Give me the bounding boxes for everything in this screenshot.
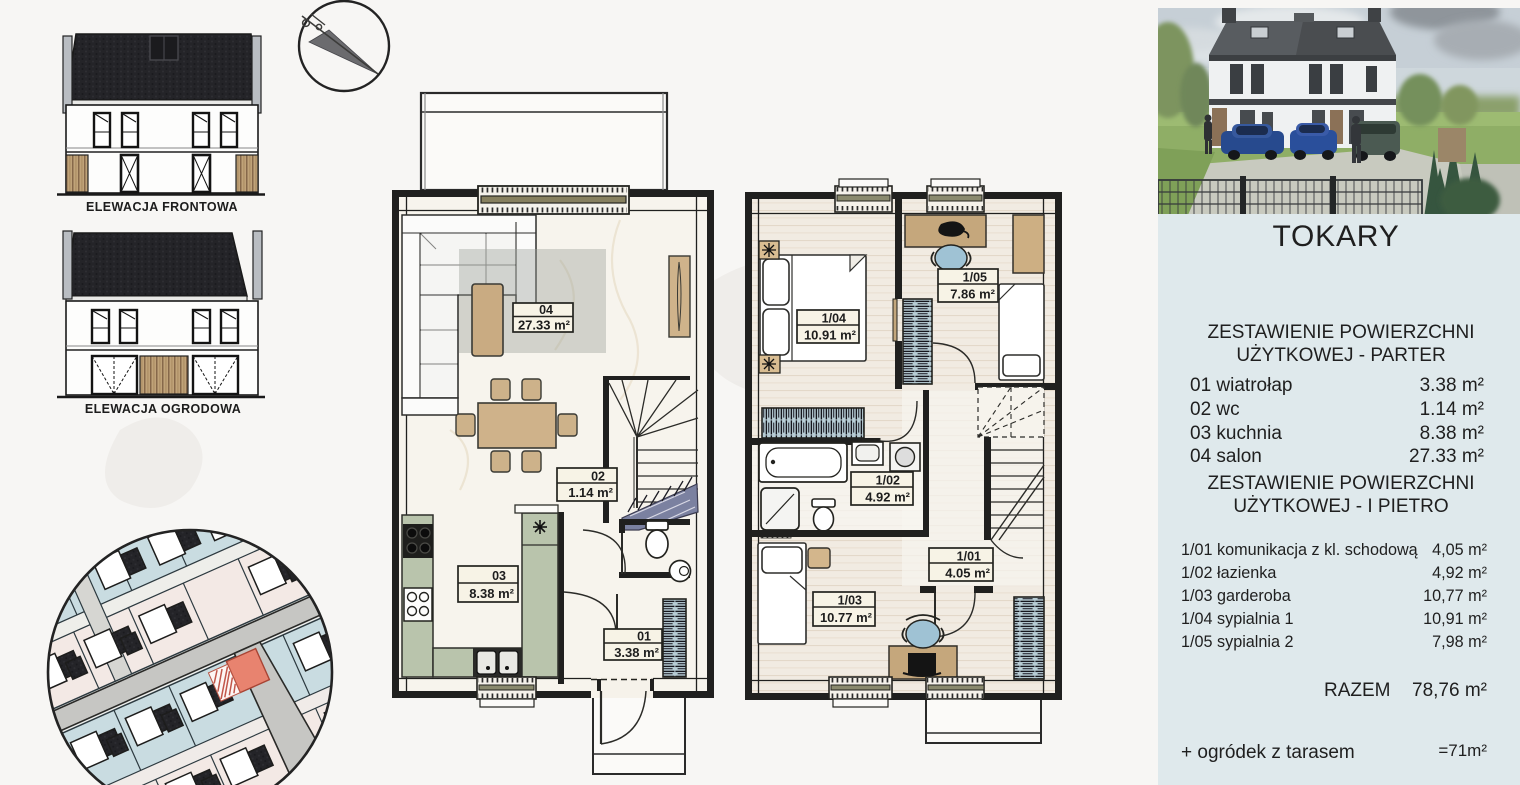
svg-text:=71m²: =71m² <box>1438 741 1487 760</box>
svg-text:10.77 m²: 10.77 m² <box>820 610 873 625</box>
svg-text:10,91 m²: 10,91 m² <box>1423 610 1487 628</box>
svg-text:10.91 m²: 10.91 m² <box>804 328 857 343</box>
svg-text:4.92 m²: 4.92 m² <box>865 490 910 505</box>
svg-text:UŻYTKOWEJ - I PIETRO: UŻYTKOWEJ - I PIETRO <box>1233 496 1448 517</box>
svg-text:TOKARY: TOKARY <box>1272 220 1399 253</box>
svg-text:1/02 łazienka: 1/02 łazienka <box>1181 564 1276 582</box>
svg-text:03: 03 <box>492 569 506 583</box>
svg-text:01 wiatrołap: 01 wiatrołap <box>1190 375 1292 396</box>
svg-text:1.14 m²: 1.14 m² <box>1420 399 1484 420</box>
svg-text:1/02: 1/02 <box>876 474 900 488</box>
svg-text:UŻYTKOWEJ - PARTER: UŻYTKOWEJ - PARTER <box>1236 345 1445 366</box>
svg-text:03 kuchnia: 03 kuchnia <box>1190 423 1282 444</box>
svg-text:04 salon: 04 salon <box>1190 446 1262 467</box>
svg-text:ELEWACJA OGRODOWA: ELEWACJA OGRODOWA <box>85 402 241 416</box>
svg-text:7.86 m²: 7.86 m² <box>950 287 995 302</box>
svg-text:+ ogródek z tarasem: + ogródek z tarasem <box>1181 742 1355 763</box>
svg-text:27.33 m²: 27.33 m² <box>518 318 571 333</box>
svg-text:04: 04 <box>539 303 553 317</box>
svg-text:1/04: 1/04 <box>822 312 846 326</box>
svg-text:3.38 m²: 3.38 m² <box>1420 375 1484 396</box>
svg-text:1/04 sypialnia 1: 1/04 sypialnia 1 <box>1181 610 1294 628</box>
svg-text:10,77 m²: 10,77 m² <box>1423 587 1487 605</box>
svg-text:1/01 komunikacja z kl. schodo: 1/01 komunikacja z kl. schodową <box>1181 541 1418 559</box>
svg-text:ZESTAWIENIE POWIERZCHNI: ZESTAWIENIE POWIERZCHNI <box>1207 322 1474 343</box>
svg-text:1/03: 1/03 <box>838 594 862 608</box>
svg-text:1/01: 1/01 <box>957 550 981 564</box>
svg-text:01: 01 <box>637 630 651 644</box>
svg-text:02 wc: 02 wc <box>1190 399 1240 420</box>
svg-text:1/03 garderoba: 1/03 garderoba <box>1181 587 1291 605</box>
svg-text:4.05 m²: 4.05 m² <box>945 566 990 581</box>
svg-text:1/05: 1/05 <box>963 271 987 285</box>
svg-text:1/05 sypialnia 2: 1/05 sypialnia 2 <box>1181 633 1294 651</box>
svg-text:02: 02 <box>591 470 605 484</box>
svg-text:8.38 m²: 8.38 m² <box>1420 423 1484 444</box>
svg-text:7,98 m²: 7,98 m² <box>1432 633 1487 651</box>
svg-text:ELEWACJA FRONTOWA: ELEWACJA FRONTOWA <box>86 200 238 214</box>
svg-text:ZESTAWIENIE POWIERZCHNI: ZESTAWIENIE POWIERZCHNI <box>1207 473 1474 494</box>
svg-text:4,92 m²: 4,92 m² <box>1432 564 1487 582</box>
svg-text:RAZEM: RAZEM <box>1324 680 1391 701</box>
svg-text:4,05 m²: 4,05 m² <box>1432 541 1487 559</box>
svg-text:3.38 m²: 3.38 m² <box>614 645 659 660</box>
svg-text:1.14 m²: 1.14 m² <box>568 485 613 500</box>
svg-text:8.38 m²: 8.38 m² <box>469 586 514 601</box>
svg-text:27.33 m²: 27.33 m² <box>1409 446 1484 467</box>
svg-text:78,76 m²: 78,76 m² <box>1412 680 1487 701</box>
